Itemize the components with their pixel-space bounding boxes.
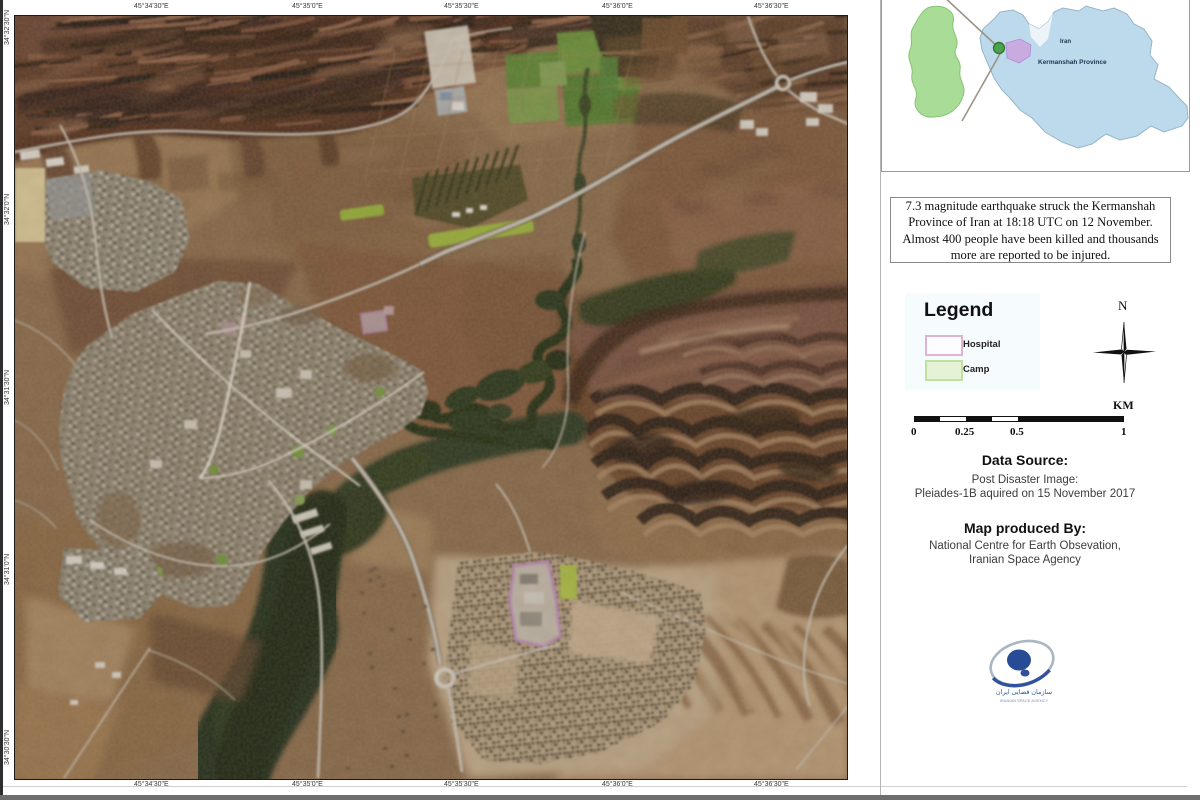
svg-text:Kermanshah Province: Kermanshah Province (1038, 59, 1107, 66)
svg-text:سازمان فضایی ایران: سازمان فضایی ایران (996, 688, 1053, 696)
svg-text:Iran: Iran (1060, 39, 1071, 45)
svg-text:IRANIAN SPACE AGENCY: IRANIAN SPACE AGENCY (1000, 698, 1049, 703)
svg-text:N: N (1118, 298, 1128, 313)
